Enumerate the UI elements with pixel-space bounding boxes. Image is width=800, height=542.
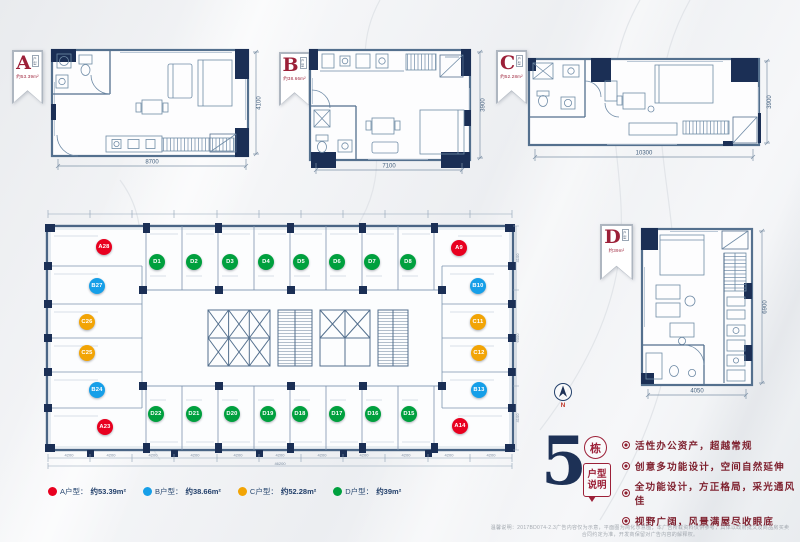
unit-b-tag: 户型	[300, 57, 307, 69]
legend-area: 约38.66m²	[185, 486, 220, 497]
unit-a-area: 约53.39m²	[12, 74, 43, 80]
selling-point-text: 全功能设计，方正格局，采光通风佳	[635, 479, 800, 507]
unit-badge: B27	[89, 278, 105, 294]
legend-dot-d	[333, 487, 342, 496]
unit-badge: A14	[452, 418, 468, 434]
unit-b-floorplan: 7100 3900	[308, 48, 503, 180]
legend-dot-b	[143, 487, 152, 496]
legend-item-b: B户型：约38.66m²	[143, 486, 221, 497]
legend-label: B户型：	[155, 486, 183, 497]
bullet-icon	[622, 441, 630, 449]
unit-a-tag: 户型	[32, 55, 39, 67]
unit-b-letter: B	[282, 55, 298, 76]
unit-c-floorplan: 10300 3900	[527, 57, 772, 177]
unit-badge: D16	[365, 406, 381, 422]
bubble-line1: 户型	[587, 469, 606, 480]
unit-badge: D15	[401, 406, 417, 422]
banner-unit-a: A户型 约53.39m²	[12, 50, 43, 104]
unit-badge: D20	[224, 406, 240, 422]
dim-label-b-height: 3900	[481, 98, 487, 112]
unit-badge: D22	[148, 406, 164, 422]
selling-point: 创意多功能设计，空间自然延伸	[622, 459, 800, 473]
legend-label: C户型：	[250, 486, 278, 497]
svg-text:4200: 4200	[402, 453, 412, 458]
legend-dot-a	[48, 487, 57, 496]
unit-c-area: 约52.28m²	[496, 74, 527, 80]
unit-badge: B13	[471, 382, 487, 398]
unit-badge: C11	[470, 314, 486, 330]
selling-point-text: 创意多功能设计，空间自然延伸	[635, 459, 785, 473]
unit-badge: B24	[89, 382, 105, 398]
unit-a-floorplan: 8700 4100	[50, 48, 265, 176]
unit-badge: D4	[258, 254, 274, 270]
selling-points: 活性办公资产，超越常规 创意多功能设计，空间自然延伸 全功能设计，方正格局，采光…	[622, 438, 800, 534]
bullet-icon	[622, 489, 630, 497]
svg-text:4200: 4200	[191, 453, 201, 458]
svg-text:4200: 4200	[107, 453, 117, 458]
legend-area: 约53.39m²	[91, 486, 126, 497]
banner-unit-b: B户型 约38.66m²	[279, 52, 310, 106]
unit-badge: A23	[97, 419, 113, 435]
unit-badge: C12	[471, 345, 487, 361]
unit-badge: D8	[400, 254, 416, 270]
unit-d-tag: 户型	[622, 229, 629, 241]
unit-badge: D18	[292, 406, 308, 422]
disclaimer-text: 温馨说明：2017BD074-2.3广告内容仅为示意，平面图为简化示意图；本广告…	[490, 524, 790, 538]
dim-label-a-height: 4100	[257, 96, 263, 110]
unit-description-title: 户型 说明	[583, 463, 611, 497]
unit-d-letter: D	[604, 227, 620, 248]
unit-a-letter: A	[16, 53, 31, 74]
unit-badge: C25	[79, 345, 95, 361]
dim-label-c-height: 3900	[767, 95, 772, 109]
unit-badge: D6	[329, 254, 345, 270]
legend-label: D户型：	[345, 486, 373, 497]
svg-text:4200: 4200	[445, 453, 455, 458]
compass: N	[553, 382, 573, 409]
svg-text:4200: 4200	[234, 453, 244, 458]
svg-text:4200: 4200	[149, 453, 159, 458]
building-number: 5	[541, 425, 587, 497]
selling-point: 全功能设计，方正格局，采光通风佳	[622, 479, 800, 507]
dim-label-b-width: 7100	[382, 164, 396, 170]
dim-label-d-width: 4050	[690, 389, 704, 395]
banner-unit-d: D户型 约39m²	[600, 224, 633, 280]
unit-c-tag: 户型	[516, 55, 523, 67]
svg-text:4200: 4200	[318, 453, 328, 458]
unit-d-floorplan: 4050 6900	[640, 227, 772, 413]
unit-badge: D3	[222, 254, 238, 270]
unit-c-letter: C	[500, 53, 515, 74]
unit-b-area: 约38.66m²	[279, 76, 310, 82]
selling-point: 活性办公资产，超越常规	[622, 438, 800, 452]
unit-badge: D21	[186, 406, 202, 422]
compass-icon	[553, 382, 573, 402]
unit-badge: C26	[79, 314, 95, 330]
floorplan-poster: A户型 约53.39m²	[0, 0, 800, 542]
legend-item-d: D户型：约39m²	[333, 486, 401, 497]
unit-badge: A28	[96, 239, 112, 255]
unit-badge: D7	[364, 254, 380, 270]
svg-text:4200: 4200	[360, 453, 370, 458]
unit-badge: D1	[149, 254, 165, 270]
dim-label-a-width: 8700	[145, 160, 159, 166]
unit-badge: B10	[470, 278, 486, 294]
svg-text:4200: 4200	[65, 453, 75, 458]
svg-text:4200: 4200	[276, 453, 286, 458]
legend-dot-c	[238, 487, 247, 496]
legend-area: 约39m²	[376, 486, 401, 497]
unit-badge: D17	[329, 406, 345, 422]
bullet-icon	[622, 462, 630, 470]
legend-label: A户型：	[60, 486, 88, 497]
unit-type-legend: A户型：约53.39m² B户型：约38.66m² C户型：约52.28m² D…	[48, 486, 401, 497]
legend-item-c: C户型：约52.28m²	[238, 486, 316, 497]
svg-text:46200: 46200	[274, 461, 286, 466]
bubble-line2: 说明	[587, 480, 606, 491]
dim-label-d-height: 6900	[763, 300, 769, 314]
svg-text:4200: 4200	[487, 453, 497, 458]
legend-item-a: A户型：约53.39m²	[48, 486, 126, 497]
selling-point-text: 活性办公资产，超越常规	[635, 438, 753, 452]
dim-label-c-width: 10300	[636, 151, 653, 157]
compass-north-label: N	[553, 402, 573, 409]
unit-badge: A9	[451, 240, 467, 256]
unit-badge: D2	[186, 254, 202, 270]
unit-badge: D5	[293, 254, 309, 270]
building-number-suffix: 栋	[584, 436, 607, 459]
banner-unit-c: C户型 约52.28m²	[496, 50, 527, 104]
legend-area: 约52.28m²	[281, 486, 316, 497]
unit-badge: D19	[260, 406, 276, 422]
unit-d-area: 约39m²	[600, 248, 633, 254]
